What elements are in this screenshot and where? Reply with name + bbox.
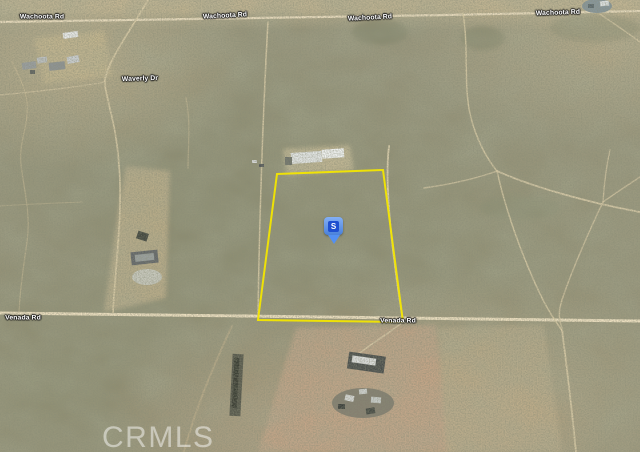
sand-speckle-texture <box>0 0 640 452</box>
listing-marker-letter: S <box>328 221 339 232</box>
listing-marker-pin: S <box>324 217 343 235</box>
crmls-watermark: CRMLS <box>102 421 215 452</box>
road-label-venada-east: Venada Rd <box>380 318 416 325</box>
satellite-map: S Wachoota Rd Wachoota Rd Wachoota Rd Wa… <box>0 0 640 452</box>
road-label-venada-west: Venada Rd <box>5 315 41 322</box>
road-label-waverly: Waverly Dr <box>122 75 158 83</box>
map-imagery-layer <box>0 0 640 452</box>
road-label-wachoota-1: Wachoota Rd <box>20 14 64 21</box>
